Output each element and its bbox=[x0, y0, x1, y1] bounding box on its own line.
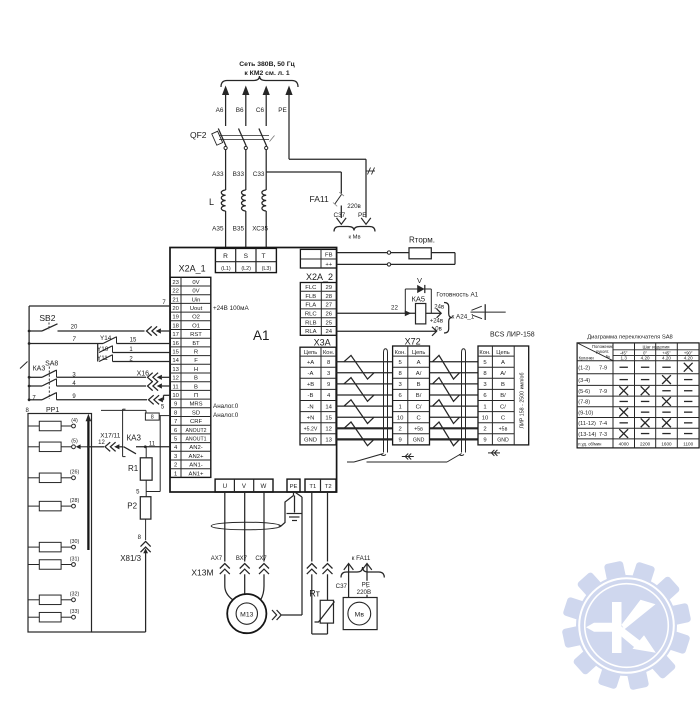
svg-text:(32): (32) bbox=[70, 592, 80, 598]
svg-text:7-9: 7-9 bbox=[599, 365, 607, 371]
svg-text:GND: GND bbox=[304, 438, 317, 444]
svg-text:С/: С/ bbox=[500, 404, 506, 410]
svg-text:14: 14 bbox=[172, 358, 179, 364]
svg-text:9: 9 bbox=[483, 438, 486, 444]
svg-text:QF2: QF2 bbox=[190, 130, 207, 140]
svg-text:-В: -В bbox=[308, 393, 314, 399]
svg-text:AN1+: AN1+ bbox=[189, 471, 204, 477]
svg-text:Цепь: Цепь bbox=[412, 350, 425, 356]
svg-text:2: 2 bbox=[399, 426, 402, 432]
svg-text:220В: 220В bbox=[357, 589, 371, 596]
svg-text:(9-10): (9-10) bbox=[578, 410, 593, 416]
svg-text:Х13М: Х13М bbox=[191, 568, 213, 578]
svg-text:0V: 0V bbox=[192, 280, 199, 286]
svg-text:2200: 2200 bbox=[640, 441, 651, 446]
svg-text:-N: -N bbox=[307, 404, 313, 410]
svg-text:+N: +N bbox=[307, 415, 315, 421]
svg-text:М13: М13 bbox=[240, 612, 253, 619]
svg-text:W: W bbox=[260, 483, 266, 490]
svg-text:2: 2 bbox=[483, 426, 486, 432]
svg-text:БТ: БТ bbox=[192, 341, 200, 347]
svg-text:16: 16 bbox=[172, 341, 179, 347]
svg-text:А33: А33 bbox=[212, 171, 224, 178]
svg-text:Р2: Р2 bbox=[127, 501, 137, 510]
svg-text:RLC: RLC bbox=[305, 312, 318, 318]
svg-text:А/: А/ bbox=[500, 371, 506, 377]
svg-text:А/: А/ bbox=[416, 371, 422, 377]
svg-text:С: С bbox=[501, 415, 506, 421]
svg-text:В: В bbox=[501, 382, 505, 388]
svg-text:Х17/11: Х17/11 bbox=[100, 433, 121, 440]
svg-text:0V: 0V bbox=[192, 289, 199, 295]
svg-text:1: 1 bbox=[483, 404, 486, 410]
svg-text:АХ7: АХ7 bbox=[211, 556, 223, 562]
svg-text:Шаг изделия: Шаг изделия bbox=[642, 344, 670, 349]
svg-text:(5-6): (5-6) bbox=[578, 389, 590, 395]
svg-text:Аналог.0: Аналог.0 bbox=[213, 403, 239, 410]
svg-text:FLC: FLC bbox=[305, 285, 317, 291]
svg-text:7-3: 7-3 bbox=[599, 432, 607, 438]
svg-text:С/: С/ bbox=[416, 404, 422, 410]
svg-text:22: 22 bbox=[172, 289, 179, 295]
svg-text:+45°: +45° bbox=[662, 350, 671, 355]
svg-text:Rторм.: Rторм. bbox=[409, 236, 435, 245]
svg-text:+А: +А bbox=[307, 360, 314, 366]
svg-text:0в: 0в bbox=[435, 327, 442, 333]
svg-text:Х81/3: Х81/3 bbox=[120, 554, 141, 563]
svg-text:ХС35: ХС35 bbox=[252, 226, 268, 233]
svg-text:12: 12 bbox=[98, 440, 105, 446]
svg-text:4000: 4000 bbox=[619, 441, 630, 446]
svg-text:SB2: SB2 bbox=[39, 313, 55, 323]
svg-text:КА3: КА3 bbox=[33, 365, 46, 372]
svg-text:Кон.: Кон. bbox=[479, 350, 491, 356]
svg-text:13: 13 bbox=[325, 438, 332, 444]
svg-text:19: 19 bbox=[172, 315, 179, 321]
svg-text:Диаграмма переключателя SA8: Диаграмма переключателя SA8 bbox=[587, 335, 673, 341]
svg-text:13: 13 bbox=[172, 367, 179, 373]
svg-text:Кулачки: Кулачки bbox=[579, 355, 594, 360]
svg-text:Y10: Y10 bbox=[97, 346, 109, 353]
svg-text:AN2-: AN2- bbox=[189, 445, 202, 451]
svg-text:O2: O2 bbox=[192, 315, 200, 321]
svg-text:А35: А35 bbox=[212, 226, 224, 233]
svg-text:+24в: +24в bbox=[430, 319, 443, 325]
svg-text:п.уд. об/мин: п.уд. об/мин bbox=[578, 441, 601, 446]
svg-text:AN2+: AN2+ bbox=[189, 454, 204, 460]
svg-text:R: R bbox=[223, 253, 228, 260]
svg-text:Цепь: Цепь bbox=[496, 350, 509, 356]
svg-text:FB: FB bbox=[325, 253, 333, 259]
svg-text:20: 20 bbox=[172, 306, 179, 312]
svg-text:-45°: -45° bbox=[620, 350, 628, 355]
svg-text:№: № bbox=[606, 354, 611, 359]
svg-text:Цепь: Цепь bbox=[304, 350, 317, 356]
svg-text:(26): (26) bbox=[70, 470, 80, 476]
svg-text:-А: -А bbox=[308, 371, 314, 377]
svg-text:к А24_1: к А24_1 bbox=[452, 313, 475, 320]
svg-text:Rт: Rт bbox=[309, 589, 320, 599]
svg-text:Х3А: Х3А bbox=[314, 337, 331, 347]
svg-text:(28): (28) bbox=[70, 498, 80, 504]
svg-text:V: V bbox=[417, 276, 422, 285]
svg-text:GND: GND bbox=[413, 438, 425, 444]
svg-text:7-4: 7-4 bbox=[599, 421, 607, 427]
svg-text:PE: PE bbox=[362, 582, 370, 589]
svg-text:20: 20 bbox=[71, 324, 78, 330]
svg-text:8: 8 bbox=[151, 415, 154, 421]
svg-text:1: 1 bbox=[399, 404, 402, 410]
svg-text:+24В 100мА: +24В 100мА bbox=[213, 305, 249, 312]
svg-text:(L1): (L1) bbox=[221, 266, 231, 272]
svg-text:к Мв: к Мв bbox=[348, 235, 360, 241]
svg-text:(1-2): (1-2) bbox=[578, 365, 590, 371]
svg-text:15: 15 bbox=[172, 349, 179, 355]
svg-text:С: С bbox=[416, 415, 421, 421]
svg-text:17: 17 bbox=[172, 332, 179, 338]
svg-text:O1: O1 bbox=[192, 323, 200, 329]
svg-text:(13-14): (13-14) bbox=[578, 432, 596, 438]
svg-text:220в: 220в bbox=[347, 203, 361, 210]
svg-text:+5в: +5в bbox=[414, 426, 423, 432]
svg-text:(7-8): (7-8) bbox=[578, 400, 590, 406]
svg-text:Х16: Х16 bbox=[137, 371, 150, 378]
svg-text:15: 15 bbox=[130, 337, 137, 343]
svg-text:MRS: MRS bbox=[189, 402, 202, 408]
svg-text:А: А bbox=[501, 360, 505, 366]
svg-text:24в: 24в bbox=[434, 305, 444, 311]
svg-text:Uout: Uout bbox=[190, 306, 203, 312]
svg-text:к КМ2 см. л. 1: к КМ2 см. л. 1 bbox=[244, 70, 289, 77]
svg-text:Аналог.0: Аналог.0 bbox=[213, 412, 239, 419]
svg-text:+5.2V: +5.2V bbox=[304, 426, 318, 432]
svg-text:Сеть 380В, 50 Гц: Сеть 380В, 50 Гц bbox=[239, 61, 295, 68]
svg-text:С33: С33 bbox=[253, 171, 265, 178]
svg-text:(31): (31) bbox=[70, 556, 80, 562]
svg-text:Кон.: Кон. bbox=[395, 350, 407, 356]
svg-text:(L3): (L3) bbox=[262, 266, 272, 272]
svg-text:R1: R1 bbox=[128, 464, 139, 473]
svg-text:10: 10 bbox=[397, 415, 404, 421]
svg-text:SA8: SA8 bbox=[45, 360, 58, 367]
svg-text:+5в: +5в bbox=[499, 426, 508, 432]
svg-text:PE: PE bbox=[358, 212, 367, 219]
svg-text:12: 12 bbox=[172, 376, 179, 382]
svg-text:С37: С37 bbox=[334, 212, 346, 219]
svg-text:4.20: 4.20 bbox=[641, 356, 650, 361]
svg-text:КА3: КА3 bbox=[127, 433, 142, 442]
svg-text:В/: В/ bbox=[416, 393, 422, 399]
svg-text:28: 28 bbox=[326, 294, 333, 300]
svg-text:11: 11 bbox=[173, 384, 179, 390]
svg-text:1100: 1100 bbox=[683, 441, 693, 446]
svg-text:S: S bbox=[244, 253, 249, 260]
svg-text:(4): (4) bbox=[71, 418, 78, 424]
svg-text:Готовность А1: Готовность А1 bbox=[436, 292, 478, 299]
svg-text:В: В bbox=[194, 384, 198, 390]
svg-text:4.20: 4.20 bbox=[684, 356, 693, 361]
svg-text:Т2: Т2 bbox=[325, 484, 332, 490]
svg-text:PE: PE bbox=[290, 484, 298, 490]
svg-text:26: 26 bbox=[326, 312, 333, 318]
svg-text:L: L bbox=[209, 197, 214, 207]
svg-text:RLB: RLB bbox=[305, 320, 317, 326]
svg-text:+В: +В bbox=[307, 382, 314, 388]
svg-text:+90°: +90° bbox=[684, 350, 693, 355]
svg-text:В: В bbox=[417, 382, 421, 388]
svg-text:Мв: Мв bbox=[355, 612, 365, 619]
svg-text:U: U bbox=[223, 483, 227, 490]
svg-text:С6: С6 bbox=[256, 107, 265, 114]
svg-text:BCS ЛИР-158: BCS ЛИР-158 bbox=[490, 332, 535, 339]
svg-text:Кон.: Кон. bbox=[323, 350, 335, 356]
svg-text:PE: PE bbox=[278, 107, 287, 114]
svg-text:GND: GND bbox=[497, 438, 509, 444]
svg-text:СХ7: СХ7 bbox=[255, 556, 267, 562]
svg-text:(11-12): (11-12) bbox=[578, 421, 596, 427]
svg-text:++: ++ bbox=[325, 262, 332, 268]
svg-text:12: 12 bbox=[325, 426, 332, 432]
svg-text:RST: RST bbox=[190, 332, 202, 338]
svg-text:7-9: 7-9 bbox=[599, 389, 607, 395]
svg-text:FLA: FLA bbox=[305, 303, 316, 309]
svg-text:ЛИР 158 - 2500 имп/об: ЛИР 158 - 2500 имп/об bbox=[520, 372, 526, 428]
svg-text:1.3: 1.3 bbox=[621, 356, 628, 361]
svg-text:21: 21 bbox=[172, 297, 179, 303]
svg-text:18: 18 bbox=[172, 323, 179, 329]
svg-text:FA11: FA11 bbox=[310, 194, 329, 204]
svg-text:1600: 1600 bbox=[661, 441, 672, 446]
svg-text:Н: Н bbox=[194, 367, 198, 373]
svg-text:1: 1 bbox=[174, 471, 177, 477]
svg-text:(33): (33) bbox=[70, 609, 80, 615]
svg-text:Х2А_1: Х2А_1 bbox=[179, 264, 206, 274]
svg-text:Х72: Х72 bbox=[405, 336, 421, 346]
svg-text:В: В bbox=[194, 376, 198, 382]
svg-text:ВХ7: ВХ7 bbox=[236, 556, 248, 562]
svg-text:F: F bbox=[194, 358, 198, 364]
svg-text:А: А bbox=[417, 360, 421, 366]
svg-text:11: 11 bbox=[149, 441, 156, 447]
svg-text:А6: А6 bbox=[216, 107, 224, 114]
svg-text:Y14: Y14 bbox=[100, 335, 112, 342]
svg-text:CRF: CRF bbox=[190, 419, 203, 425]
svg-text:(L2): (L2) bbox=[241, 266, 251, 272]
svg-text:к FA11: к FA11 bbox=[352, 555, 371, 562]
svg-text:R: R bbox=[194, 349, 198, 355]
svg-text:25: 25 bbox=[326, 320, 333, 326]
svg-text:Т1: Т1 bbox=[309, 484, 316, 490]
svg-text:9: 9 bbox=[327, 382, 330, 388]
svg-text:П: П bbox=[194, 393, 198, 399]
svg-text:Uin: Uin bbox=[192, 297, 201, 303]
svg-text:4.20: 4.20 bbox=[662, 356, 671, 361]
svg-text:9: 9 bbox=[399, 438, 402, 444]
svg-text:В35: В35 bbox=[233, 226, 245, 233]
svg-text:С37: С37 bbox=[336, 583, 348, 590]
svg-text:В33: В33 bbox=[233, 171, 245, 178]
svg-text:15: 15 bbox=[325, 415, 332, 421]
svg-text:29: 29 bbox=[326, 285, 333, 291]
svg-text:(3-4): (3-4) bbox=[578, 378, 590, 384]
svg-text:КА5: КА5 bbox=[412, 295, 426, 304]
svg-text:(5): (5) bbox=[71, 439, 78, 445]
svg-text:В/: В/ bbox=[500, 393, 506, 399]
svg-text:24: 24 bbox=[326, 329, 333, 335]
svg-text:9: 9 bbox=[174, 402, 177, 408]
svg-text:T: T bbox=[262, 253, 266, 260]
svg-text:(30): (30) bbox=[70, 539, 80, 545]
svg-text:7: 7 bbox=[174, 419, 177, 425]
svg-text:В6: В6 bbox=[236, 107, 244, 114]
svg-text:22: 22 bbox=[391, 304, 398, 311]
svg-text:10: 10 bbox=[482, 415, 489, 421]
svg-text:А1: А1 bbox=[253, 328, 270, 343]
svg-text:ANOUT2: ANOUT2 bbox=[185, 428, 206, 434]
svg-text:RLA: RLA bbox=[305, 329, 317, 335]
svg-text:23: 23 bbox=[172, 280, 179, 286]
svg-text:Х2А_2: Х2А_2 bbox=[306, 272, 333, 282]
svg-text:14: 14 bbox=[325, 404, 332, 410]
svg-text:AN1-: AN1- bbox=[189, 463, 202, 469]
svg-text:2: 2 bbox=[174, 463, 177, 469]
svg-text:0°: 0° bbox=[643, 350, 647, 355]
svg-text:SD: SD bbox=[192, 410, 200, 416]
svg-text:FLB: FLB bbox=[305, 294, 316, 300]
svg-text:10: 10 bbox=[172, 393, 179, 399]
svg-text:ANOUT1: ANOUT1 bbox=[185, 436, 206, 442]
svg-text:27: 27 bbox=[326, 303, 333, 309]
